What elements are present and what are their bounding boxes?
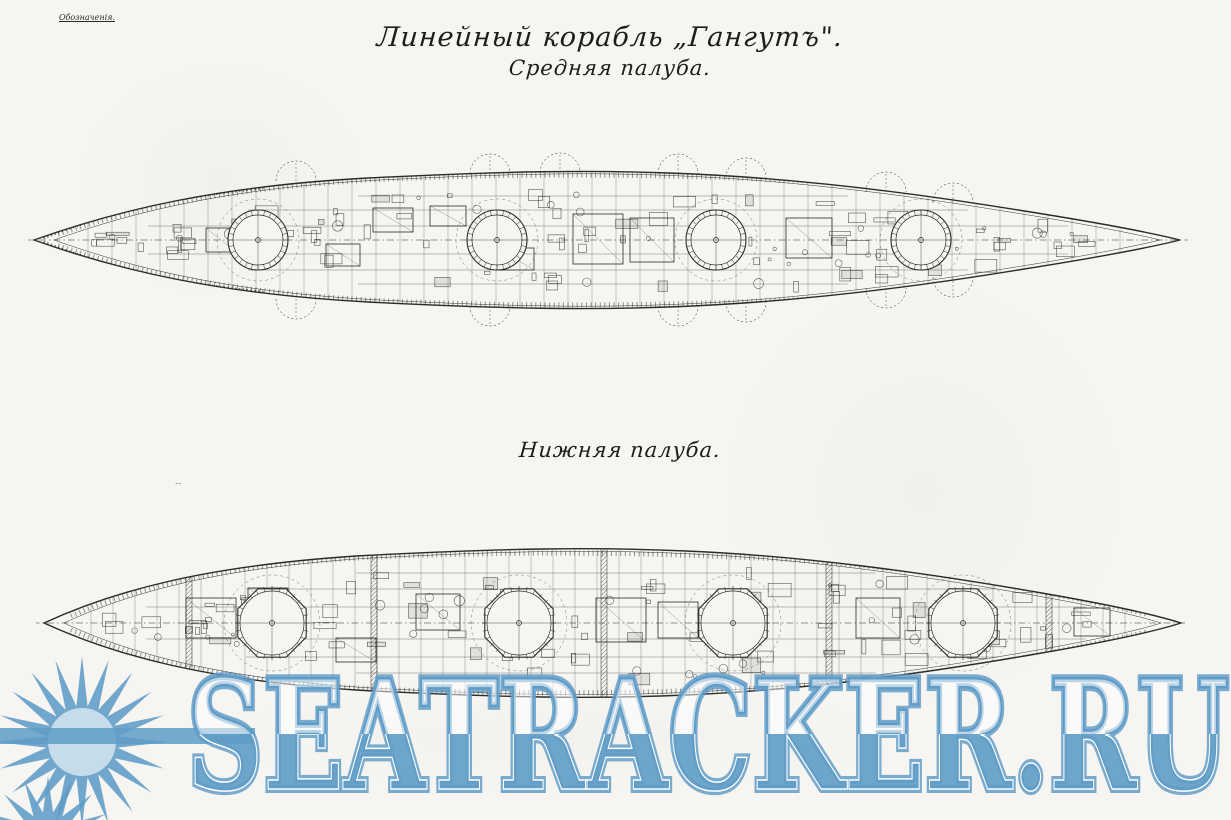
legend-entry: 71 xyxy=(155,380,333,387)
legend-entry: 74 xyxy=(240,26,440,33)
legend-entry: 47 xyxy=(122,74,234,81)
legend-entry: 73 xyxy=(372,781,627,787)
legend-entry: 92 xyxy=(1058,35,1228,43)
legend-entry: 6 xyxy=(8,66,116,73)
legend-entry: 1 xyxy=(8,30,116,37)
legend-block-top-left-3: 74757677787980818283848586878889 xyxy=(240,26,440,143)
legend-entry: 77 xyxy=(240,48,440,55)
legend-entry: 42 xyxy=(170,491,365,499)
legend-entry: 141 xyxy=(1108,403,1228,410)
legend-entry: 101 xyxy=(1095,725,1230,731)
legend-entry: 41 xyxy=(122,31,234,38)
legend-entry: 100 xyxy=(1095,719,1230,725)
legend-entry: 9 xyxy=(28,496,166,503)
legend-entry: 30 xyxy=(30,372,158,379)
legend-entry: 43 xyxy=(170,499,365,507)
legend-entry: 75 xyxy=(372,794,627,800)
legend-entry: 56 xyxy=(122,140,234,147)
legend-entry: 14 xyxy=(8,125,116,132)
legend-entry: 117 xyxy=(945,362,1103,370)
legend-entry: 42 xyxy=(30,793,235,799)
legend-entry: 32 xyxy=(30,387,158,394)
legend-entry: 88 xyxy=(940,776,1108,783)
legend-entry: 12 xyxy=(8,110,116,117)
legend-entry: 61 xyxy=(1108,507,1228,514)
legend-entry: 70 xyxy=(155,372,333,379)
middle-deck-plan xyxy=(28,148,1188,332)
legend-entry: 51 xyxy=(122,104,234,111)
legend-entry: 40 xyxy=(170,476,365,484)
legend-entry: 2 xyxy=(28,445,166,452)
legend-entry: 94 xyxy=(1058,50,1228,58)
legend-entry: 86 xyxy=(240,114,440,121)
legend-entry: 40 xyxy=(122,23,234,30)
legend-entry: 87 xyxy=(940,768,1108,775)
legend-entry: 50 xyxy=(838,509,1023,516)
legend-entry: 12 xyxy=(28,518,166,525)
legend-entry: 25 xyxy=(30,336,158,343)
legend-entry: 83 xyxy=(240,92,440,99)
legend-entry: 113 xyxy=(945,332,1103,340)
legend-entry: 66 xyxy=(155,343,333,350)
legend-entry: 119 xyxy=(945,377,1103,385)
legend-entry: 103 xyxy=(1058,118,1228,126)
legend-entry: 122 xyxy=(945,399,1103,407)
legend-entry: 28 xyxy=(30,358,158,365)
legend-entry: 5 xyxy=(28,467,166,474)
legend-entry: 138 xyxy=(1108,383,1228,390)
legend-entry: 1 xyxy=(28,438,166,445)
scanned-sheet: Обозначенія. Линейный корабль „Гангутъ".… xyxy=(0,0,1231,820)
legend-entry: 49 xyxy=(122,89,234,96)
legend-entry: 83 xyxy=(940,739,1108,746)
legend-entry: 81 xyxy=(240,77,440,84)
legend-entry: 55 xyxy=(122,133,234,140)
legend-entry: 11 xyxy=(8,103,116,110)
legend-entry: 134 xyxy=(1108,357,1228,364)
legend-entry: 10 xyxy=(8,96,116,103)
legend-entry: 133 xyxy=(1108,350,1228,357)
legend-entry: 80 xyxy=(240,70,440,77)
legend-entry: 76 xyxy=(240,41,440,48)
legend-entry: 85 xyxy=(240,106,440,113)
legend-entry: 140 xyxy=(1108,397,1228,404)
legend-block-top-left-1: 123456789101112131415161718 xyxy=(8,30,116,161)
legend-entry: 89 xyxy=(240,135,440,142)
legend-entry: 59 xyxy=(1108,492,1228,499)
legend-entry: 37 xyxy=(170,453,365,461)
legend-entry: 44 xyxy=(170,506,365,514)
legend-entry: 105 xyxy=(1058,133,1228,141)
legend-entry: 135 xyxy=(1108,363,1228,370)
legend-block-top-right: 9091929394959697989910010110210310410510… xyxy=(1058,20,1228,148)
legend-entry: 48 xyxy=(838,494,1023,501)
legend-entry: 3 xyxy=(8,45,116,52)
legend-entry: 79 xyxy=(240,62,440,69)
legend-entry: 121 xyxy=(945,392,1103,400)
legend-entry: 101 xyxy=(1058,103,1228,111)
legend-entry: 73 xyxy=(155,394,333,401)
legend-entry: 8 xyxy=(28,489,166,496)
legend-entry: 51 xyxy=(838,516,1023,523)
legend-entry: 57 xyxy=(1108,478,1228,485)
legend-entry: 4 xyxy=(8,52,116,59)
legend-entry: 33 xyxy=(30,394,158,401)
legend-entry: 81 xyxy=(940,724,1108,731)
legend-entry: 90 xyxy=(1058,20,1228,28)
legend-entry: 38 xyxy=(170,461,365,469)
legend-entry: 48 xyxy=(122,82,234,89)
legend-entry: 47 xyxy=(838,487,1023,494)
legend-entry: 4 xyxy=(28,460,166,467)
legend-entry: 84 xyxy=(240,99,440,106)
legend-entry: 132 xyxy=(1108,343,1228,350)
legend-entry: 34 xyxy=(30,401,158,408)
legend-block-top-left-2: 3940414243444546474849505152535455565758 xyxy=(122,16,234,162)
legend-entry: 6 xyxy=(28,474,166,481)
legend-entry: 58 xyxy=(1108,485,1228,492)
legend-entry: 35 xyxy=(170,438,365,446)
legend-entry: 84 xyxy=(940,746,1108,753)
legend-entry: 27 xyxy=(30,350,158,357)
legend-entry: 82 xyxy=(940,732,1108,739)
legend-entry: 106 xyxy=(1058,140,1228,148)
legend-entry: 65 xyxy=(155,336,333,343)
legend-entry: 89 xyxy=(940,783,1108,790)
legend-entry: 5 xyxy=(8,59,116,66)
legend-entry: 118 xyxy=(945,369,1103,377)
legend-entry: 10 xyxy=(28,504,166,511)
legend-entry: 104 xyxy=(1058,125,1228,133)
legend-entry: 93 xyxy=(1058,43,1228,51)
legend-entry: 68 xyxy=(155,358,333,365)
legend-entry: 74 xyxy=(155,401,333,408)
legend-entry: 3 xyxy=(28,453,166,460)
legend-entry: 75 xyxy=(155,409,333,416)
legend-entry: 72 xyxy=(155,387,333,394)
legend-entry: 9 xyxy=(8,88,116,95)
legend-entry: 99 xyxy=(1058,88,1228,96)
legend-entry: 45 xyxy=(122,60,234,67)
legend-entry: 75 xyxy=(240,33,440,40)
legend-entry: 91 xyxy=(1058,28,1228,36)
lower-deck-plan xyxy=(36,528,1186,718)
legend-entry: 42 xyxy=(122,38,234,45)
legend-entry: 16 xyxy=(8,139,116,146)
legend-entry: 60 xyxy=(1108,500,1228,507)
legend-entry: 46 xyxy=(122,67,234,74)
legend-entry: 39 xyxy=(122,16,234,23)
legend-entry: 49 xyxy=(838,502,1023,509)
legend-entry: 43 xyxy=(122,45,234,52)
legend-entry: 13 xyxy=(8,118,116,125)
legend-entry: 62 xyxy=(1108,514,1228,521)
legend-entry: 87 xyxy=(240,121,440,128)
legend-entry: 80 xyxy=(940,717,1108,724)
legend-block-lower-left-2: 35363738394041424344 xyxy=(170,438,365,514)
legend-entry: 88 xyxy=(240,128,440,135)
legend-entry: 67 xyxy=(155,350,333,357)
legend-entry: 98 xyxy=(1058,80,1228,88)
legend-entry: 116 xyxy=(945,354,1103,362)
legend-entry: 102 xyxy=(1058,110,1228,118)
legend-entry: 15 xyxy=(8,132,116,139)
legend-entry: 26 xyxy=(30,343,158,350)
legend-entry: 50 xyxy=(122,96,234,103)
legend-entry: 53 xyxy=(122,118,234,125)
legend-entry: 137 xyxy=(1108,377,1228,384)
legend-entry: 115 xyxy=(945,347,1103,355)
legend-entry: 136 xyxy=(1108,370,1228,377)
legend-entry: 7 xyxy=(8,74,116,81)
legend-entry: 54 xyxy=(122,125,234,132)
legend-entry: 41 xyxy=(170,484,365,492)
legend-entry: 131 xyxy=(1108,337,1228,344)
legend-entry: 52 xyxy=(122,111,234,118)
legend-entry: 7 xyxy=(28,482,166,489)
legend-entry: 86 xyxy=(940,761,1108,768)
legend-entry: 96 xyxy=(1058,65,1228,73)
legend-entry: 39 xyxy=(170,468,365,476)
legend-entry: 120 xyxy=(945,384,1103,392)
legend-entry: 85 xyxy=(940,754,1108,761)
legend-entry: 100 xyxy=(1058,95,1228,103)
legend-entry: 45 xyxy=(838,472,1023,479)
legend-entry: 29 xyxy=(30,365,158,372)
legend-entry: 11 xyxy=(28,511,166,518)
legend-entry: 44 xyxy=(122,52,234,59)
legend-entry: 46 xyxy=(838,479,1023,486)
legend-entry: 2 xyxy=(8,37,116,44)
legend-entry: 36 xyxy=(170,446,365,454)
legend-entry: 82 xyxy=(240,84,440,91)
legend-entry: 31 xyxy=(30,380,158,387)
legend-entry: 78 xyxy=(240,55,440,62)
legend-entry: 95 xyxy=(1058,58,1228,66)
legend-entry: 139 xyxy=(1108,390,1228,397)
legend-entry: 8 xyxy=(8,81,116,88)
legend-entry: 97 xyxy=(1058,73,1228,81)
legend-entry: 114 xyxy=(945,339,1103,347)
legend-entry: 113 xyxy=(1095,795,1230,801)
legend-entry: 69 xyxy=(155,365,333,372)
